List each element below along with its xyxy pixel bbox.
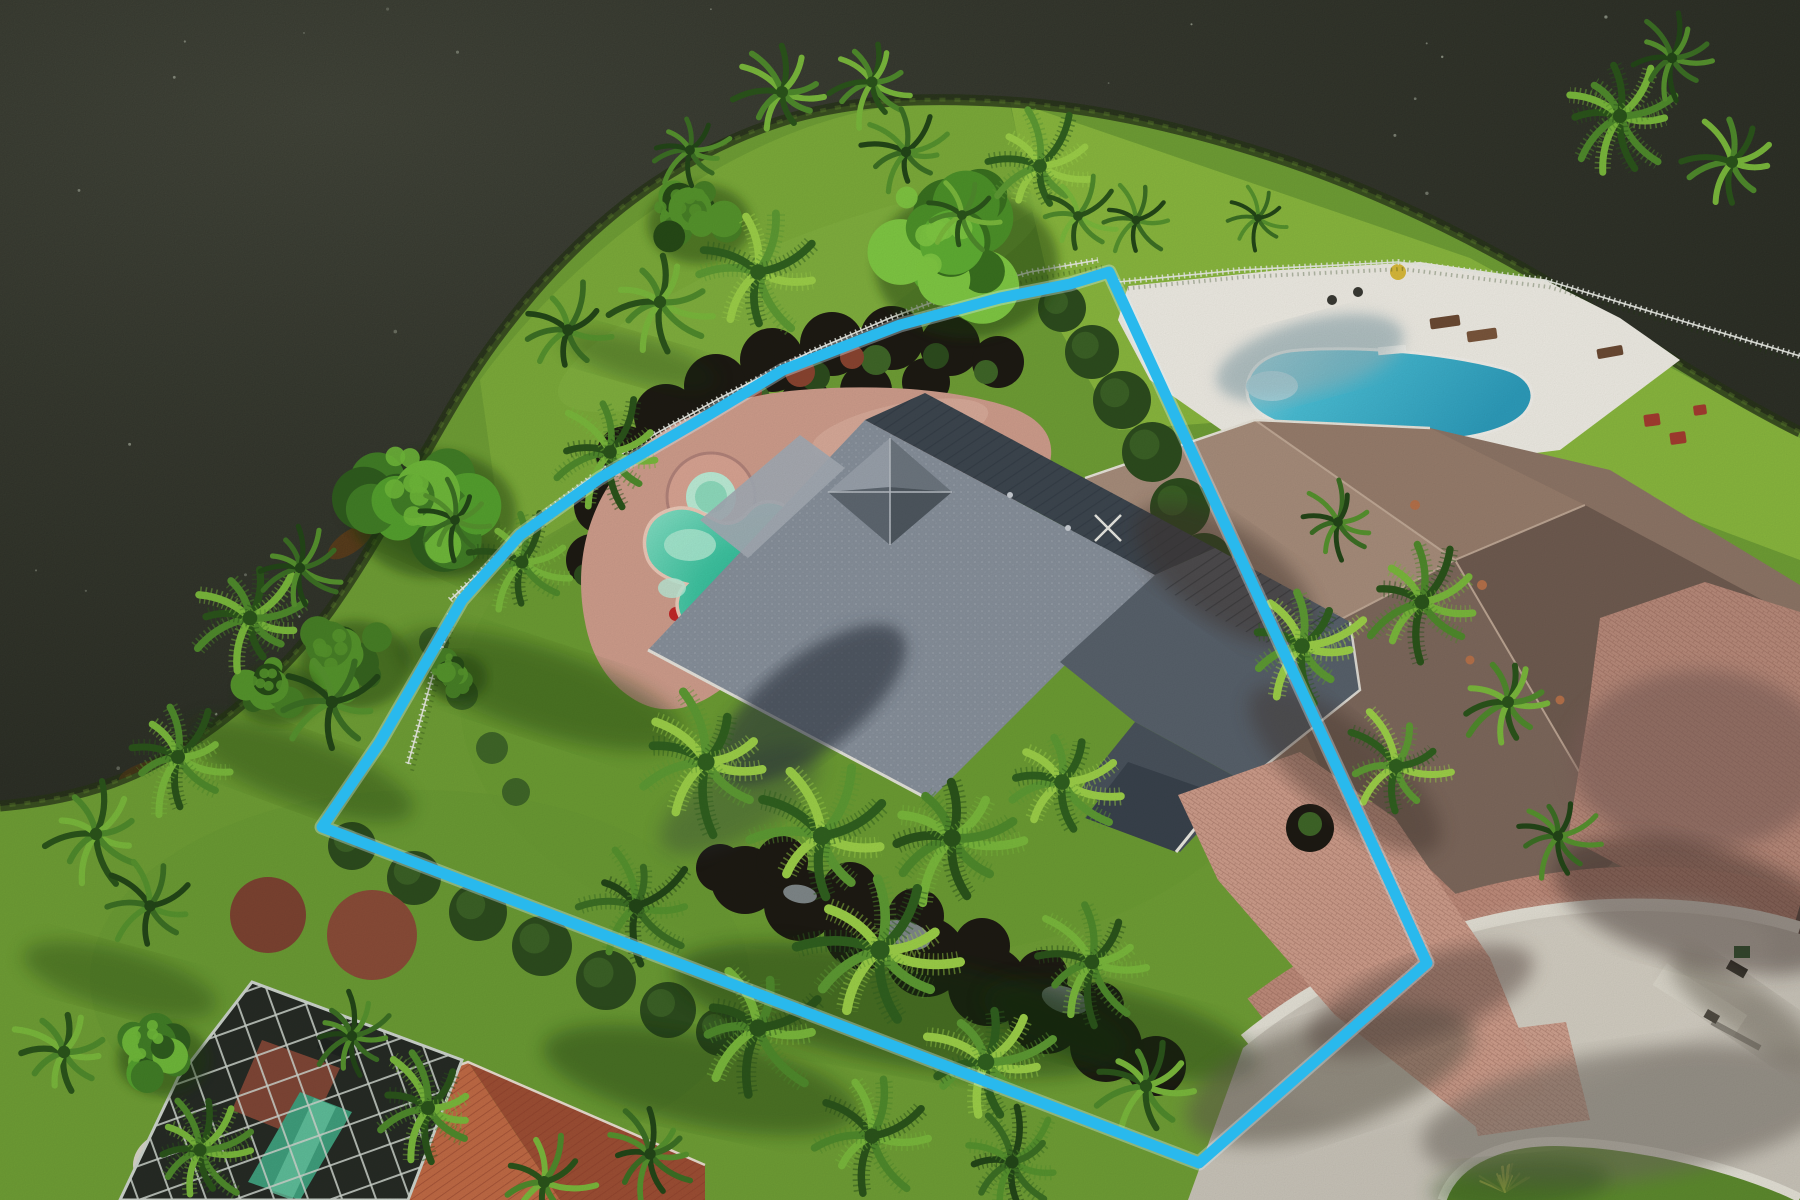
photo-grain: [0, 0, 1800, 1200]
aerial-photo: [0, 0, 1800, 1200]
scene-svg: [0, 0, 1800, 1200]
